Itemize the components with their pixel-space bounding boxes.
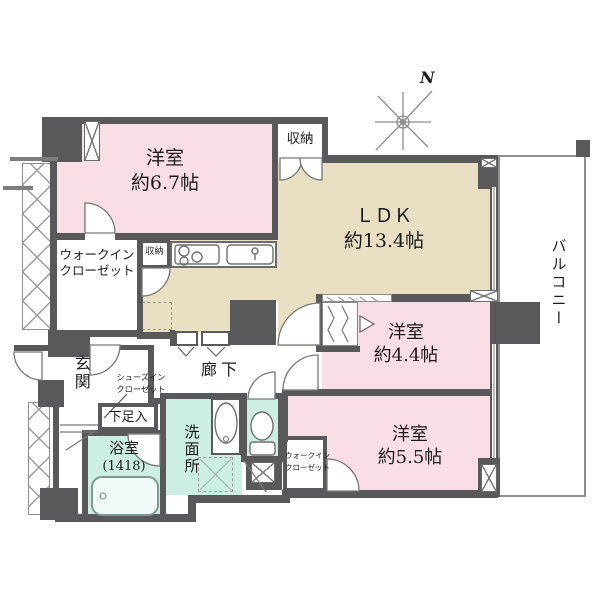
wic1-label: ウォークイン クローゼット — [55, 247, 139, 280]
wall — [53, 407, 59, 490]
entrance-door-arc — [14, 352, 42, 380]
window-ldk — [490, 187, 498, 302]
hallway-label: 廊下 — [191, 360, 251, 381]
wall — [160, 393, 247, 399]
vanity-cabinet — [211, 398, 241, 455]
washing-machine-space — [198, 457, 233, 492]
wall — [287, 389, 490, 396]
pillar — [230, 300, 276, 345]
refrigerator-space — [142, 302, 172, 330]
storage-kitchen-label: 収納 — [139, 247, 170, 259]
wall — [82, 430, 166, 436]
room-name: 洋室 — [60, 146, 270, 171]
wic2-label: ウォークイン クローゼット — [285, 450, 325, 474]
wic1-line2: クローゼット — [55, 263, 139, 279]
fix-window — [470, 290, 498, 302]
room-size: 約5.5帖 — [310, 446, 510, 469]
vent-window — [481, 158, 497, 168]
hall-cabinet-1 — [175, 331, 198, 346]
wall — [322, 155, 498, 163]
washroom-label: 洗面所 — [181, 424, 201, 475]
wic2-line1: ウォークイン — [285, 450, 325, 462]
hall-cabinet-2 — [201, 331, 230, 346]
sliding-door — [322, 294, 392, 302]
room-toilet — [247, 399, 278, 456]
pillar — [48, 330, 90, 357]
wic2-line2: クローゼット — [285, 462, 325, 474]
wall — [188, 495, 288, 503]
room-name: 洋室 — [310, 423, 510, 446]
window-bedroom2 — [490, 344, 498, 396]
wall — [278, 117, 328, 124]
pillar — [38, 380, 64, 407]
wall — [82, 430, 88, 522]
bedroom1-label: 洋室 約6.7帖 — [60, 146, 270, 195]
compass-icon — [375, 91, 432, 150]
pipe-space — [251, 462, 275, 483]
wall — [50, 162, 57, 240]
ldk-passage — [278, 295, 316, 346]
wall — [241, 393, 247, 459]
wall — [3, 186, 33, 190]
wall — [10, 157, 58, 161]
kitchen-counter — [170, 241, 277, 268]
room-name: 洋室 — [322, 321, 490, 344]
genkan-label: 玄関 — [70, 355, 91, 391]
wall — [50, 233, 85, 240]
bath-size: (1418) — [90, 459, 158, 476]
floor-plan: 洋室 約6.7帖 ＬＤＫ 約13.4帖 洋室 約4.4帖 洋室 約5.5帖 バル… — [0, 0, 600, 600]
bath-label: 浴室 (1418) — [90, 439, 158, 475]
room-name: ＬＤＫ — [278, 204, 490, 229]
balcony-label: バルコニー — [548, 238, 568, 328]
pillar — [576, 140, 590, 157]
washroom-door-arc — [248, 372, 275, 399]
bedroom2-label: 洋室 約4.4帖 — [322, 321, 490, 368]
room-size: 約4.4帖 — [322, 344, 490, 367]
room-size: 約13.4帖 — [278, 229, 490, 254]
shoe-cabinet-label: 下足入 — [98, 410, 158, 427]
pillar — [490, 302, 540, 344]
storage-top-label: 収納 — [278, 131, 322, 149]
wall — [148, 398, 162, 404]
bedroom2-door-arc — [283, 355, 318, 390]
wall — [170, 330, 175, 346]
sic-line2: クローゼット — [110, 383, 172, 395]
wall — [282, 490, 498, 498]
wall — [160, 399, 166, 521]
cabinet-swing-mark — [207, 347, 225, 356]
bath-name: 浴室 — [90, 439, 158, 459]
bedroom3-label: 洋室 約5.5帖 — [310, 423, 510, 470]
sic-line1: シューズイン — [110, 371, 172, 383]
ldk-label: ＬＤＫ 約13.4帖 — [278, 204, 490, 253]
room-size: 約6.7帖 — [60, 171, 270, 196]
sic-label: シューズイン クローゼット — [110, 371, 172, 396]
pillar — [40, 488, 78, 520]
cabinet-swing-mark — [178, 347, 194, 356]
compass-n-label: N — [420, 68, 435, 89]
wic1-line1: ウォークイン — [55, 247, 139, 263]
wall — [278, 393, 284, 459]
wall — [14, 345, 48, 351]
